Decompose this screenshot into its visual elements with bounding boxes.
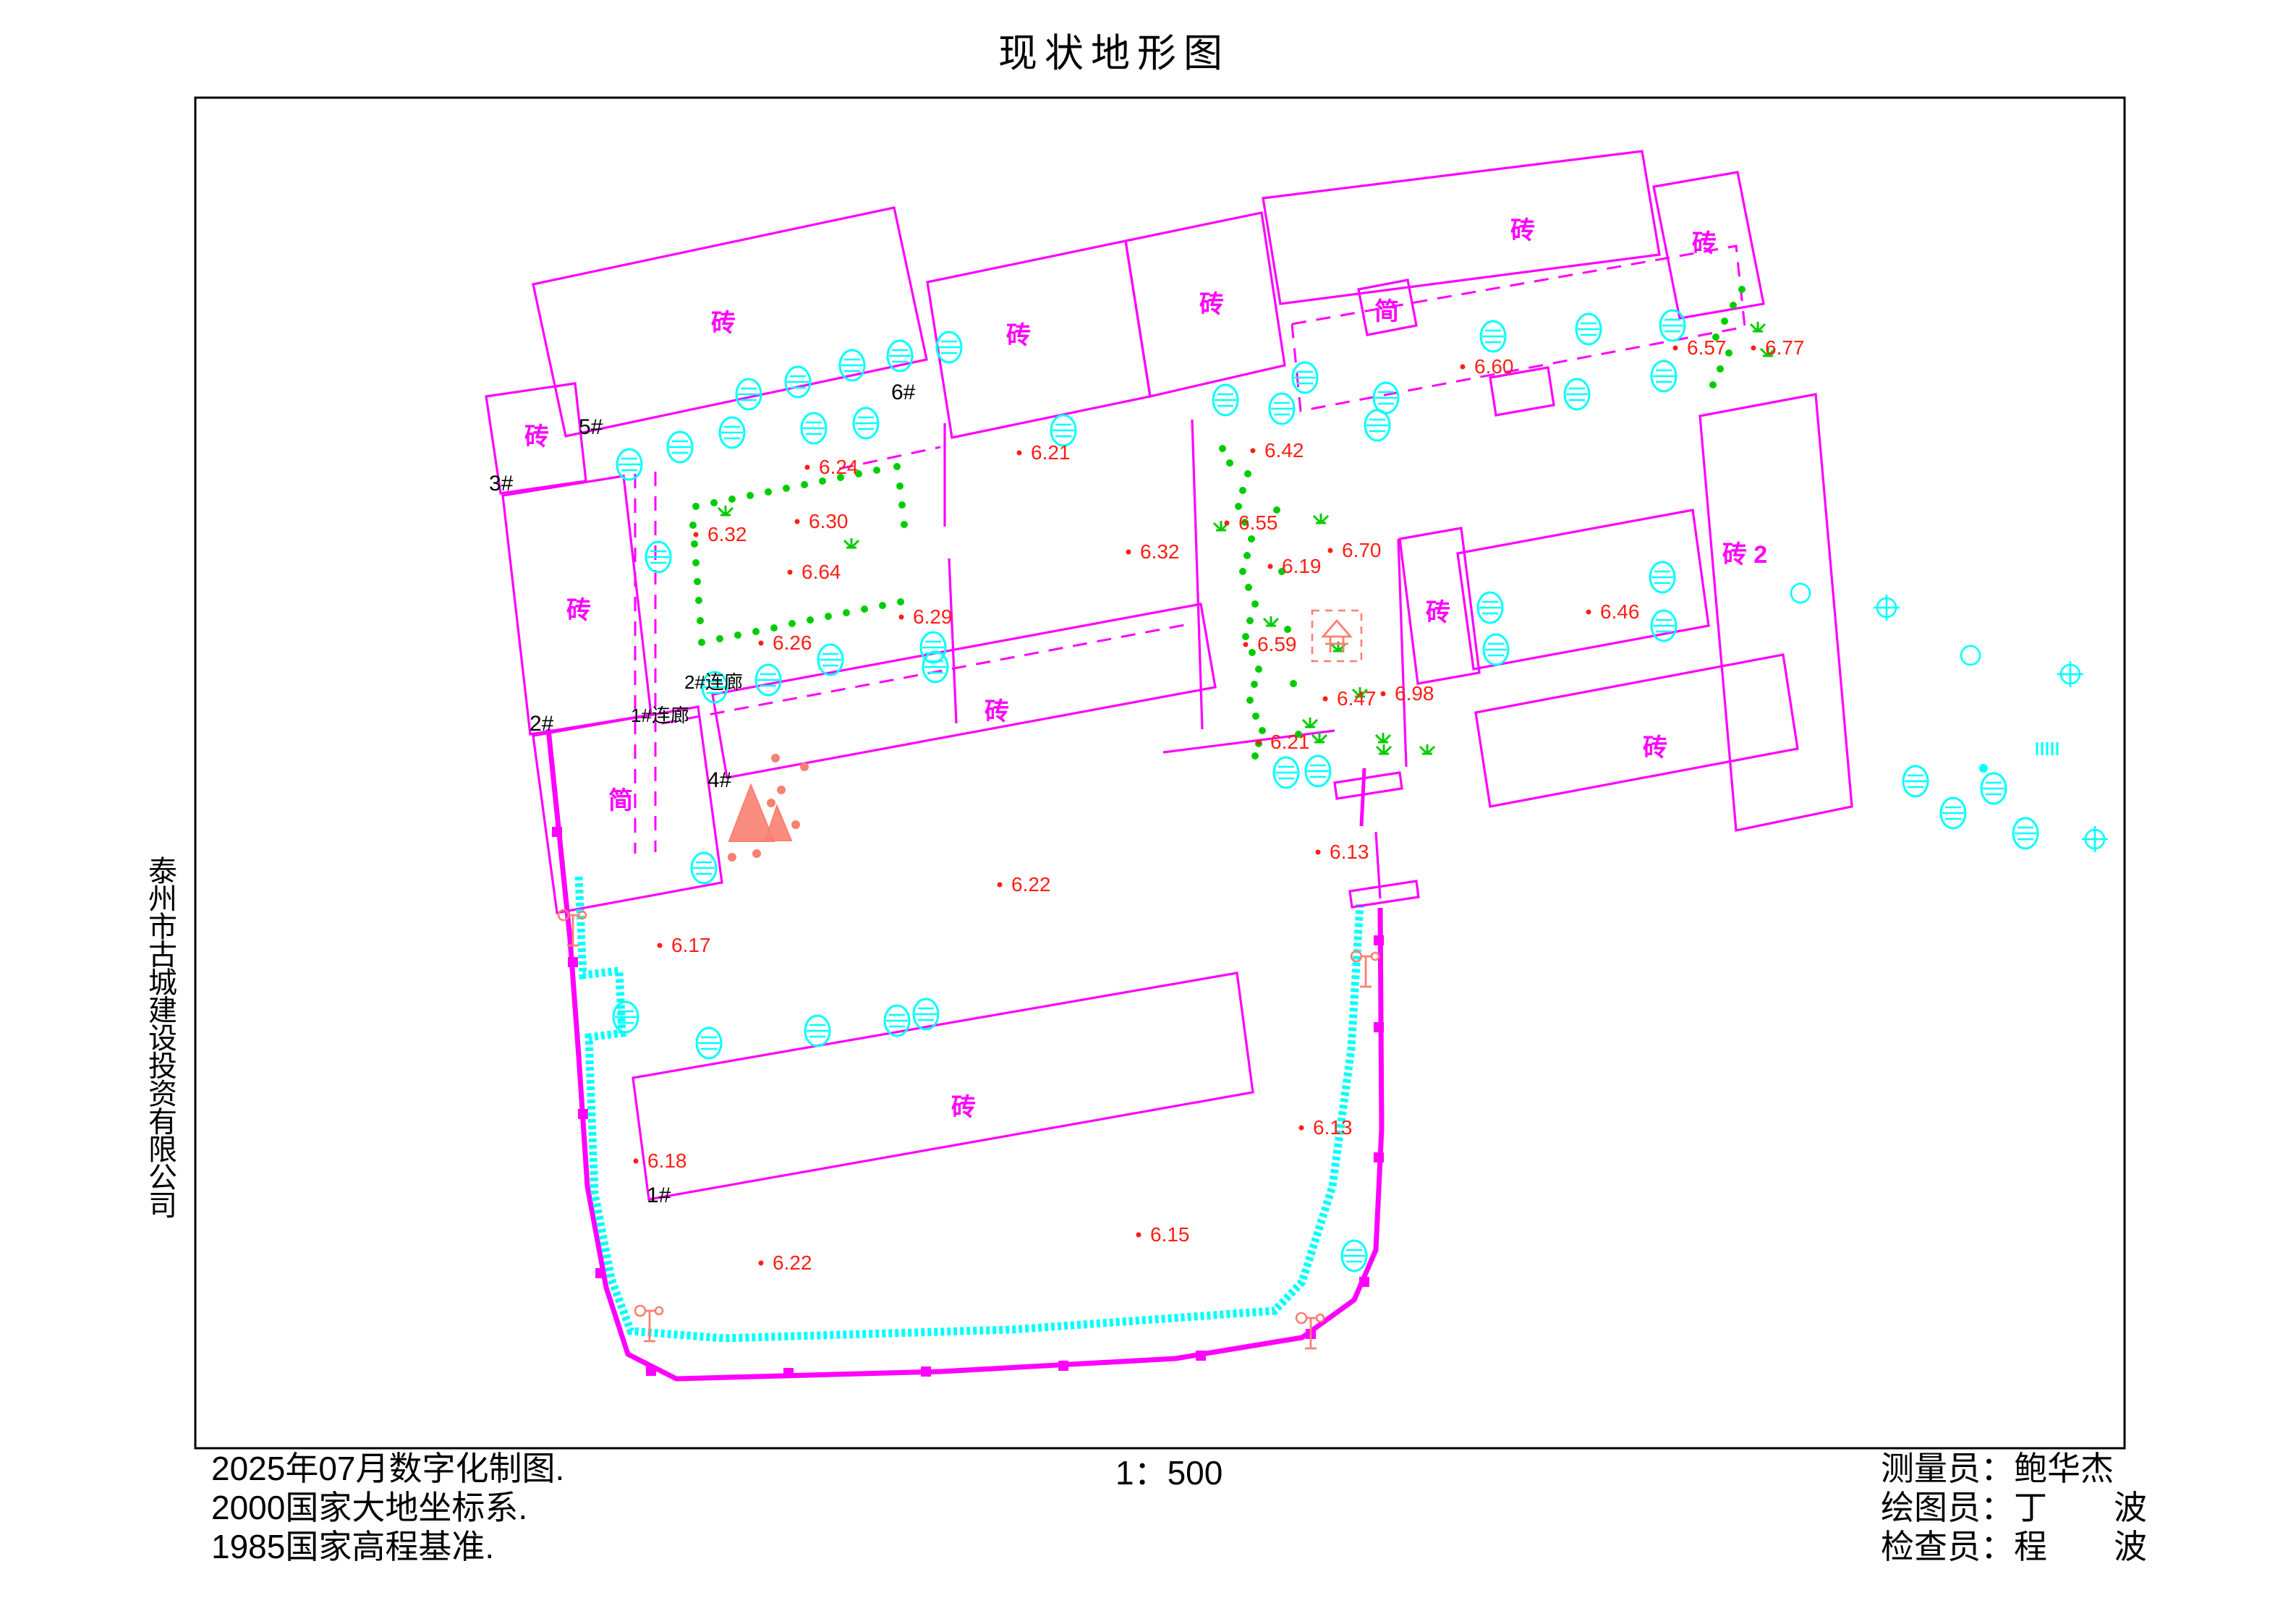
hedge-dot — [1251, 600, 1259, 608]
elevation-point — [1257, 740, 1262, 745]
gate-pole — [1361, 768, 1364, 826]
elevation-point — [1225, 521, 1230, 526]
rockery-triangles-icon — [765, 806, 791, 841]
building-polygon — [1700, 394, 1852, 830]
boundary-tick — [783, 1368, 794, 1378]
building-material-label: 砖 — [711, 310, 736, 337]
boundary-tick — [578, 1109, 588, 1119]
tree-hatch — [669, 441, 691, 453]
hedge-dot — [1248, 535, 1255, 543]
street-lamp-head — [1317, 1314, 1324, 1322]
street-lamp-head — [655, 1307, 663, 1314]
elevation-point — [998, 883, 1003, 888]
building-id-label: 2# — [530, 712, 554, 736]
hedge-dot — [1251, 752, 1259, 760]
tree-hatch — [1343, 1250, 1365, 1262]
elevation-point — [1586, 610, 1591, 615]
hedge-dot — [691, 540, 698, 548]
tree-hatch — [1482, 331, 1504, 342]
building-material-label: 砖 — [1643, 734, 1667, 762]
tree-hatch — [1983, 783, 2004, 794]
elevation-label: 6.29 — [913, 605, 953, 628]
company-name-vertical: 公 — [148, 1162, 177, 1194]
tree-hatch — [2015, 828, 2036, 839]
hedge-dot — [1255, 666, 1262, 673]
tree-hatch — [618, 459, 640, 470]
elevation-label: 6.30 — [809, 510, 849, 532]
boundary-tick — [568, 957, 578, 967]
company-name-vertical: 资 — [148, 1079, 177, 1110]
hedge-dot — [710, 499, 718, 506]
red-dot — [767, 799, 775, 807]
tree-hatch — [1366, 420, 1388, 431]
hedge-dot — [1246, 697, 1254, 704]
company-name-vertical: 古 — [148, 940, 177, 972]
tree-hatch — [1653, 370, 1675, 382]
elevation-label: 6.60 — [1474, 355, 1514, 378]
elevation-label: 6.17 — [671, 934, 711, 956]
boundary-tick — [552, 827, 562, 837]
tree-hatch — [1566, 388, 1588, 400]
building-material-label: 砖 — [1426, 599, 1450, 626]
circle-cross-lines — [1874, 595, 1900, 621]
tree-hatch — [915, 1008, 937, 1020]
hedge-dot — [893, 463, 901, 470]
hedge-dot — [1235, 503, 1242, 510]
elevation-point — [1017, 451, 1022, 456]
tree-hatch — [1905, 775, 1926, 787]
elevation-point — [795, 519, 800, 524]
elevation-label: 6.21 — [1270, 731, 1310, 753]
elevation-label: 6.32 — [707, 523, 747, 545]
elevation-point — [899, 615, 904, 620]
hedge-dot — [1226, 459, 1233, 467]
hedge-dot — [1239, 568, 1246, 575]
tree-hatch — [855, 417, 877, 429]
elevation-point — [1673, 346, 1678, 351]
hedge-dot — [1709, 381, 1717, 388]
company-name-vertical: 司 — [148, 1190, 177, 1222]
hedge-dot — [1249, 649, 1256, 656]
note-line-1: 2025年07月数字化制图. — [211, 1450, 564, 1487]
building-material-label: 砖 — [524, 423, 549, 451]
boundary-tick — [1374, 935, 1384, 945]
hedge-dot — [1252, 713, 1259, 720]
wall-line — [1376, 832, 1380, 898]
company-name-vertical: 泰 — [148, 856, 177, 888]
elevation-label: 6.19 — [1282, 555, 1322, 577]
boundary-tick — [1374, 1022, 1384, 1032]
elevation-point — [1381, 692, 1386, 697]
elevation-point — [1323, 697, 1328, 702]
elevation-label: 6.46 — [1600, 600, 1640, 623]
street-lamp-head — [1296, 1313, 1306, 1323]
elevation-label: 6.42 — [1264, 439, 1304, 462]
credit-drafter: 绘图员：丁 波 — [1881, 1489, 2147, 1526]
company-name-vertical: 设 — [148, 1023, 177, 1055]
tree-hatch — [1271, 403, 1293, 414]
building-id-label: 3# — [489, 472, 514, 496]
elevation-label: 6.70 — [1342, 539, 1382, 561]
tree-hatch — [807, 1025, 828, 1037]
tree-hatch — [647, 551, 669, 563]
hedge-dot — [897, 598, 904, 605]
elevation-label: 6.98 — [1395, 682, 1434, 705]
circle-cross-lines — [2057, 661, 2083, 687]
boundary-tick — [646, 1366, 656, 1376]
hedge-dot — [1721, 318, 1728, 325]
boundary-tick — [1196, 1351, 1206, 1361]
survey-map-page: 现状地形图 2025年07月数字化制图. 2000国家大地坐标系. 1985国家… — [0, 0, 2296, 1624]
credit-surveyor: 测量员：鲍华杰 — [1881, 1450, 2114, 1487]
building-material-label: 砖 — [566, 597, 591, 624]
red-dot — [777, 786, 786, 794]
hedge-dot — [692, 559, 700, 566]
hedge-dot — [801, 481, 808, 488]
building-material-label: 砖 — [985, 698, 1009, 726]
company-name-vertical: 城 — [148, 967, 177, 999]
building-id-label: 1#连廊 — [631, 705, 689, 726]
street-lamp-head — [1372, 953, 1379, 960]
boundary-tick — [1374, 1152, 1384, 1162]
company-name-vertical: 有 — [148, 1107, 177, 1139]
hedge-dot — [1284, 626, 1291, 633]
elevation-point — [1299, 1126, 1304, 1131]
tree-hatch — [820, 654, 841, 666]
building-material-label: 砖 2 — [1722, 541, 1767, 569]
boundary-tick — [921, 1366, 931, 1377]
grass-tuft-icon — [1751, 322, 1765, 331]
hedge-dot — [1246, 617, 1254, 624]
red-dot — [791, 820, 800, 829]
credit-checker: 检查员：程 波 — [1881, 1528, 2147, 1565]
map-svg: 现状地形图 2025年07月数字化制图. 2000国家大地坐标系. 1985国家… — [0, 0, 2296, 1624]
pavilion-icon — [1323, 621, 1351, 652]
scale-label: 1：500 — [1115, 1454, 1223, 1492]
elevation-label: 6.64 — [802, 561, 841, 583]
building-material-label: 砖 — [1006, 322, 1031, 349]
elevation-point — [658, 943, 663, 948]
gate-bar — [1335, 773, 1402, 799]
street-lamp-icon — [1360, 956, 1372, 987]
tree-hatch — [721, 427, 743, 438]
hedge-dot — [807, 616, 814, 624]
elevation-point — [1268, 564, 1273, 569]
grass-tuft-icon — [1264, 616, 1278, 626]
hedge-dot — [879, 602, 886, 609]
hedge-dot — [1243, 552, 1251, 559]
elevation-point — [759, 641, 764, 646]
building-material-label: 简 — [608, 787, 633, 815]
building-id-label: 4# — [707, 768, 732, 792]
gate-bar — [1350, 881, 1419, 907]
elevation-label: 6.22 — [1011, 873, 1051, 896]
hedge-dot — [1730, 302, 1737, 309]
hedge-dot — [825, 613, 832, 620]
tree-hatch — [1215, 394, 1236, 406]
elevation-label: 6.22 — [773, 1251, 812, 1274]
building-id-label: 5# — [579, 415, 603, 439]
building-material-label: 砖 — [951, 1094, 976, 1121]
hedge-dot — [1725, 349, 1732, 357]
elevation-point — [694, 532, 699, 537]
grass-tuft-icon — [1314, 514, 1328, 523]
hedge-dot — [695, 597, 702, 604]
elevation-point — [1751, 346, 1756, 351]
elevation-point — [1243, 642, 1249, 647]
hedge-dot — [901, 521, 908, 528]
tree-hatch — [886, 1015, 908, 1026]
elevation-label: 6.77 — [1765, 336, 1805, 359]
hedge-dot — [728, 496, 736, 503]
hedge-dot — [765, 488, 772, 496]
company-name-vertical: 市 — [148, 911, 177, 943]
hedge-dot — [1717, 365, 1724, 373]
building-material-label: 砖 — [1199, 291, 1224, 318]
hedge-dot — [692, 503, 700, 510]
elevation-label: 6.24 — [819, 456, 859, 478]
tree-hatch — [1053, 425, 1074, 436]
hedge-dot — [1738, 286, 1746, 293]
elevation-point — [634, 1159, 639, 1164]
boundary-tick — [595, 1268, 605, 1278]
building-material-label: 简 — [1374, 298, 1399, 326]
elevation-label: 6.47 — [1337, 687, 1377, 710]
hedge-dot — [698, 639, 705, 646]
elevation-label: 6.55 — [1238, 511, 1278, 534]
elevation-label: 6.13 — [1313, 1116, 1353, 1139]
elevation-point — [1316, 850, 1321, 855]
tree-hatch — [1662, 320, 1683, 331]
hedge-dot — [783, 485, 790, 492]
note-line-3: 1985国家高程基准. — [211, 1528, 494, 1565]
building-polygon — [633, 973, 1253, 1199]
elevation-label: 6.32 — [1140, 540, 1180, 563]
tree-hatch — [1942, 807, 1964, 819]
elevation-point — [1126, 550, 1131, 555]
grass-tuft-icon — [1420, 744, 1434, 754]
elevation-label: 6.18 — [647, 1149, 687, 1172]
hedge-dot — [716, 635, 723, 642]
elevation-label: 6.21 — [1031, 441, 1071, 464]
hedge-dot — [898, 501, 906, 509]
building-id-label: 6# — [891, 381, 916, 404]
tree-hatch — [803, 422, 825, 434]
building-polygon — [927, 241, 1150, 438]
red-dot — [771, 754, 780, 762]
company-name-vertical: 投 — [148, 1051, 177, 1083]
cyan-dot — [1979, 764, 1988, 773]
ring-icon — [1961, 646, 1980, 665]
hedge-dot — [1219, 445, 1226, 452]
elevation-point — [788, 570, 793, 575]
elevation-point — [759, 1261, 764, 1266]
hedge-dot — [861, 605, 868, 613]
elevation-point — [805, 465, 810, 470]
hedge-dot — [896, 482, 903, 490]
building-material-label: 砖 — [1510, 217, 1535, 245]
building-polygon — [1263, 151, 1659, 304]
hedge-dot — [734, 632, 741, 639]
building-material-label: 砖 — [1692, 230, 1717, 258]
hedge-dot — [1290, 680, 1297, 687]
elevation-label: 6.15 — [1150, 1223, 1190, 1246]
red-dot — [728, 853, 736, 862]
red-dot — [752, 849, 761, 858]
hedge-dot — [873, 467, 880, 474]
page-title: 现状地形图 — [998, 32, 1230, 75]
company-name-vertical: 建 — [148, 995, 177, 1027]
elevation-point — [1460, 365, 1466, 370]
note-line-2: 2000国家大地坐标系. — [211, 1489, 527, 1526]
red-dot — [800, 762, 809, 771]
elevation-label: 6.13 — [1330, 841, 1369, 863]
grass-tuft-icon — [718, 506, 733, 515]
elevation-point — [1328, 548, 1333, 553]
boundary-tick — [1359, 1277, 1369, 1287]
building-polygon — [713, 604, 1215, 778]
elevation-point — [1136, 1233, 1141, 1238]
hedge-dot — [1251, 681, 1258, 688]
hedge-dot — [747, 492, 754, 499]
hedge-dot — [788, 620, 796, 627]
elevation-point — [1251, 448, 1256, 454]
elevation-label: 6.57 — [1687, 336, 1727, 359]
map-drawing-layer: 砖砖砖砖砖简砖砖简砖砖砖砖 2砖6.246.326.306.646.266.29… — [148, 98, 2125, 1448]
circle-cross-lines — [2082, 826, 2108, 852]
tree-hatch — [1275, 767, 1297, 778]
company-name-vertical: 限 — [148, 1134, 177, 1166]
building-id-label: 1# — [647, 1183, 671, 1207]
hedge-dot — [694, 578, 701, 585]
street-lamp-icon — [644, 1311, 655, 1341]
hedge-dot — [697, 617, 704, 624]
tree-hatch — [698, 1037, 720, 1049]
tree-hatch — [1578, 323, 1599, 335]
tree-hatch — [1307, 765, 1329, 777]
grass-tuft-icon — [1377, 744, 1391, 754]
hedge-dot — [689, 522, 697, 529]
company-name-vertical: 州 — [148, 884, 177, 916]
hedge-dot — [752, 628, 760, 635]
hedge-dot — [1242, 633, 1249, 640]
hedge-dot — [819, 477, 826, 485]
hedge-dot — [1259, 727, 1266, 734]
grass-tuft-icon — [1376, 733, 1390, 742]
hedge-dot — [843, 609, 850, 616]
boundary-tick — [1058, 1361, 1068, 1371]
elevation-label: 6.59 — [1257, 633, 1297, 655]
hedge-dot — [1245, 584, 1252, 591]
grass-tuft-icon — [1303, 718, 1317, 727]
grass-tuft-icon — [844, 538, 859, 548]
hedge-dot — [1239, 487, 1246, 494]
hedge-dot — [770, 624, 778, 632]
street-lamp-head — [635, 1306, 645, 1316]
building-id-label: 2#连廊 — [684, 671, 743, 693]
elevation-label: 6.26 — [773, 632, 812, 654]
hedge-dot — [1244, 470, 1251, 477]
